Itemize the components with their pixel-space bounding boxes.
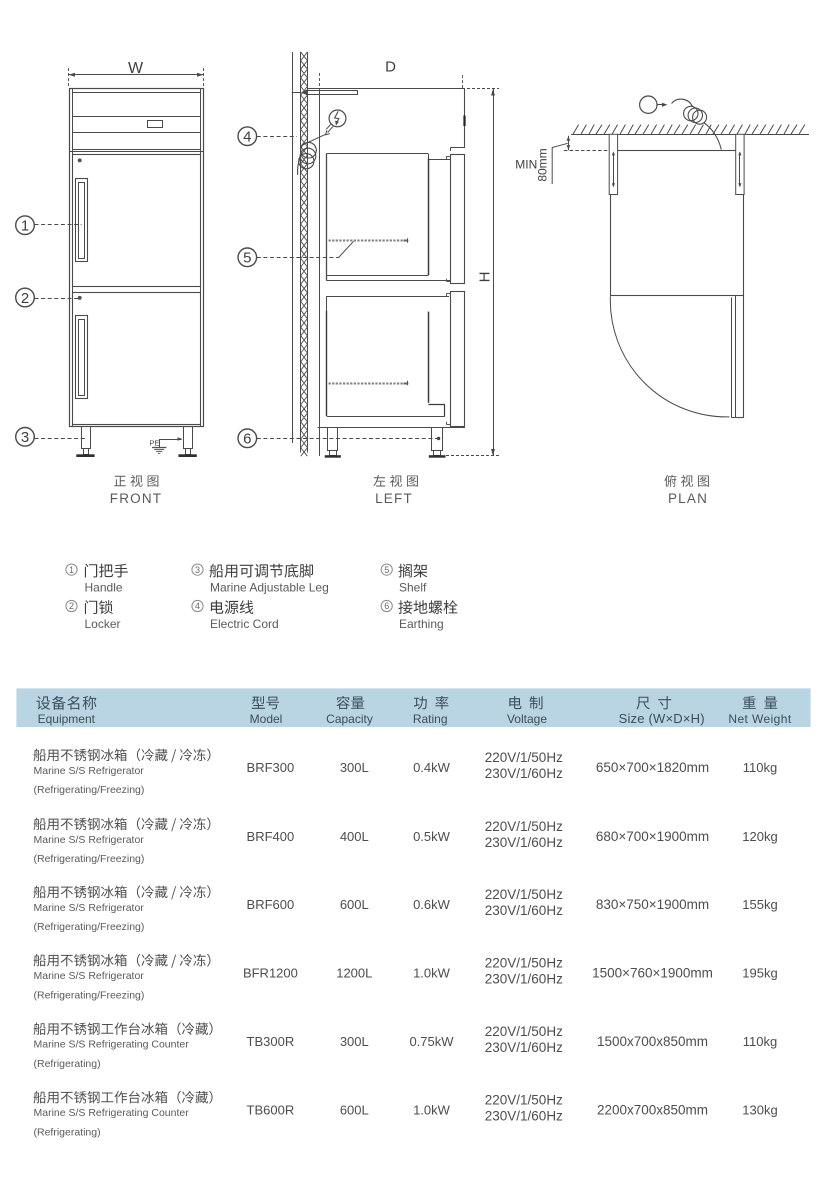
svg-text:Marine S/S Refrigerator: Marine S/S Refrigerator: [34, 970, 145, 982]
svg-text:PE: PE: [149, 438, 159, 447]
svg-text:(Refrigerating/Freezing): (Refrigerating/Freezing): [34, 921, 145, 933]
svg-text:BFR1200: BFR1200: [243, 965, 298, 980]
svg-text:6: 6: [384, 601, 389, 611]
svg-text:Size (W×D×H): Size (W×D×H): [619, 711, 705, 726]
svg-text:Rating: Rating: [413, 712, 448, 726]
svg-text:120kg: 120kg: [742, 829, 777, 844]
svg-text:6: 6: [243, 431, 251, 448]
svg-text:3: 3: [21, 429, 29, 446]
svg-text:230V/1/60Hz: 230V/1/60Hz: [485, 766, 563, 781]
svg-text:2200x700x850mm: 2200x700x850mm: [597, 1102, 708, 1117]
svg-text:Model: Model: [250, 712, 283, 726]
svg-text:D: D: [385, 59, 396, 76]
svg-text:220V/1/50Hz: 220V/1/50Hz: [485, 1092, 563, 1107]
svg-text:MIN: MIN: [515, 157, 537, 171]
svg-text:220V/1/50Hz: 220V/1/50Hz: [485, 819, 563, 834]
svg-text:0.75kW: 0.75kW: [409, 1034, 454, 1049]
svg-text:(Refrigerating/Freezing): (Refrigerating/Freezing): [34, 989, 145, 1001]
svg-text:FRONT: FRONT: [110, 491, 163, 506]
svg-text:230V/1/60Hz: 230V/1/60Hz: [485, 1108, 563, 1123]
svg-text:Capacity: Capacity: [326, 712, 373, 726]
svg-text:1.0kW: 1.0kW: [413, 1102, 451, 1117]
svg-text:Net Weight: Net Weight: [728, 712, 791, 726]
svg-text:Marine S/S Refrigerator: Marine S/S Refrigerator: [34, 834, 145, 846]
svg-text:3: 3: [195, 565, 200, 575]
svg-text:0.6kW: 0.6kW: [413, 897, 451, 912]
svg-text:1: 1: [69, 565, 74, 575]
svg-text:4: 4: [243, 129, 251, 146]
svg-text:Electric Cord: Electric Cord: [210, 617, 279, 631]
svg-text:230V/1/60Hz: 230V/1/60Hz: [485, 835, 563, 850]
svg-text:80mm: 80mm: [536, 148, 550, 181]
svg-text:TB600R: TB600R: [247, 1102, 295, 1117]
svg-text:110kg: 110kg: [743, 1034, 777, 1049]
svg-text:(Refrigerating): (Refrigerating): [34, 1126, 101, 1138]
svg-text:130kg: 130kg: [742, 1102, 777, 1117]
svg-text:400L: 400L: [340, 829, 369, 844]
svg-text:220V/1/50Hz: 220V/1/50Hz: [485, 955, 563, 970]
svg-text:4: 4: [195, 601, 200, 611]
svg-text:TB300R: TB300R: [247, 1034, 295, 1049]
svg-text:230V/1/60Hz: 230V/1/60Hz: [485, 1040, 563, 1055]
svg-text:230V/1/60Hz: 230V/1/60Hz: [485, 903, 563, 918]
svg-text:300L: 300L: [340, 760, 369, 775]
svg-text:Earthing: Earthing: [399, 617, 444, 631]
svg-text:Marine S/S Refrigerator: Marine S/S Refrigerator: [34, 902, 145, 914]
svg-text:5: 5: [243, 250, 251, 267]
svg-text:220V/1/50Hz: 220V/1/50Hz: [485, 750, 563, 765]
svg-text:Locker: Locker: [85, 617, 121, 631]
svg-text:650×700×1820mm: 650×700×1820mm: [596, 760, 709, 775]
svg-text:Marine S/S Refrigerating Count: Marine S/S Refrigerating Counter: [34, 1107, 190, 1119]
svg-text:BRF400: BRF400: [247, 829, 295, 844]
svg-text:830×750×1900mm: 830×750×1900mm: [596, 897, 709, 912]
svg-text:Marine S/S Refrigerator: Marine S/S Refrigerator: [34, 765, 145, 777]
svg-text:(Refrigerating/Freezing): (Refrigerating/Freezing): [34, 784, 145, 796]
svg-text:110kg: 110kg: [743, 760, 777, 775]
svg-text:Shelf: Shelf: [399, 581, 427, 595]
svg-text:155kg: 155kg: [742, 897, 777, 912]
svg-text:1200L: 1200L: [336, 965, 372, 980]
svg-text:1500×760×1900mm: 1500×760×1900mm: [592, 965, 713, 980]
svg-text:1500x700x850mm: 1500x700x850mm: [597, 1034, 708, 1049]
svg-text:2: 2: [69, 601, 74, 611]
svg-text:BRF600: BRF600: [247, 897, 295, 912]
svg-text:PLAN: PLAN: [668, 491, 708, 506]
svg-text:Handle: Handle: [85, 581, 123, 595]
svg-text:220V/1/50Hz: 220V/1/50Hz: [485, 1024, 563, 1039]
svg-text:2: 2: [21, 290, 29, 307]
svg-text:195kg: 195kg: [742, 965, 777, 980]
svg-text:(Refrigerating/Freezing): (Refrigerating/Freezing): [34, 853, 145, 865]
svg-text:BRF300: BRF300: [247, 760, 295, 775]
svg-text:680×700×1900mm: 680×700×1900mm: [596, 829, 709, 844]
svg-text:300L: 300L: [340, 1034, 369, 1049]
svg-text:1: 1: [21, 218, 29, 235]
svg-text:(Refrigerating): (Refrigerating): [34, 1058, 101, 1070]
svg-text:600L: 600L: [340, 897, 369, 912]
svg-text:230V/1/60Hz: 230V/1/60Hz: [485, 971, 563, 986]
svg-text:220V/1/50Hz: 220V/1/50Hz: [485, 887, 563, 902]
svg-text:1.0kW: 1.0kW: [413, 965, 451, 980]
svg-text:Equipment: Equipment: [38, 712, 96, 726]
svg-text:H: H: [477, 272, 494, 283]
svg-text:Marine Adjustable Leg: Marine Adjustable Leg: [210, 581, 329, 595]
svg-text:LEFT: LEFT: [375, 491, 413, 506]
svg-text:5: 5: [384, 565, 389, 575]
svg-text:600L: 600L: [340, 1102, 369, 1117]
svg-text:0.5kW: 0.5kW: [413, 829, 451, 844]
svg-text:0.4kW: 0.4kW: [413, 760, 451, 775]
svg-text:Voltage: Voltage: [507, 712, 547, 726]
svg-text:Marine S/S Refrigerating Count: Marine S/S Refrigerating Counter: [34, 1039, 190, 1051]
